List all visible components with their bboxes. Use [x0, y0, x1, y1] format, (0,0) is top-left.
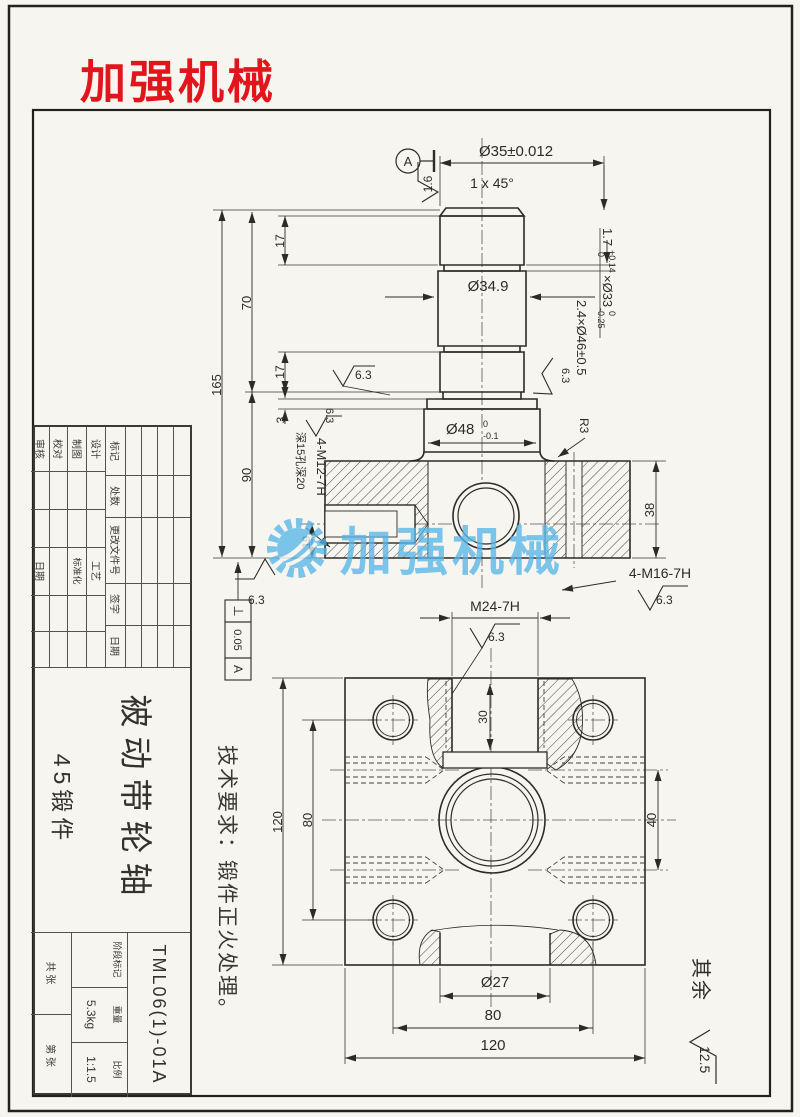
m12-depth-label: 深15孔深20 — [294, 432, 307, 489]
dim-d35: Ø35±0.012 — [479, 143, 553, 160]
r3-label: R3 — [577, 418, 591, 434]
role-standardization: 标准化 — [68, 547, 87, 595]
chamfer-label: 1 x 45° — [470, 175, 514, 191]
role-design: 设计 — [87, 427, 106, 471]
datum-a-symbol: A — [396, 149, 434, 173]
dim-17b: 17 — [273, 365, 287, 379]
svg-text:×Ø33: ×Ø33 — [600, 275, 615, 307]
dim-d48-tol-up: 0 — [483, 419, 488, 429]
dim-d48-tol-dn: -0.1 — [483, 431, 499, 441]
part-name: 被动带轮轴 — [94, 667, 182, 932]
finish-63-c-value: 6.3 — [559, 368, 571, 383]
svg-text:+0.14: +0.14 — [607, 250, 617, 273]
finish-63-a-value: 6.3 — [355, 368, 372, 382]
page-count: 第 张 — [31, 1014, 72, 1097]
m12-label: 4-M12-7H — [314, 438, 329, 496]
m24-label: M24-7H — [470, 598, 520, 614]
finish-63-b-value: 6.3 — [323, 408, 335, 423]
scale-value: 1:1.5 — [76, 1042, 106, 1097]
dim-d48-base: Ø48 — [446, 421, 474, 438]
rev-header-sign: 签字 — [106, 583, 126, 625]
dim-19: 19 — [301, 536, 313, 548]
qiyu-label: 其余 — [689, 958, 712, 1002]
groove2-label: 2.4×Ø46±0.5 — [574, 300, 589, 375]
dim-70: 70 — [239, 296, 254, 310]
technical-requirements: 技术要求：锻件正火处理。 — [213, 745, 243, 1021]
dim-120-left: 120 — [270, 811, 285, 833]
dim-165: 165 — [209, 374, 224, 396]
rev-header-biaoji: 标记 — [106, 427, 126, 475]
general-roughness-note: 其余 12.5 — [689, 958, 716, 1084]
sheet-count: 共 张 — [31, 932, 72, 1014]
flange-hidden-lines — [345, 681, 645, 883]
dim-80-bottom: 80 — [485, 1007, 502, 1024]
surface-finish-symbols — [235, 162, 688, 648]
scale-label: 比例 — [110, 1042, 126, 1097]
title-block: 标记 处数 更改文件号 签字 日期 设计 制图 校对 审核 工艺 标准化 日期 … — [33, 425, 192, 1095]
tolerance-datum-ref: A — [231, 665, 245, 673]
material-label: 45锻件 — [34, 667, 94, 932]
weight-label: 重量 — [110, 987, 126, 1042]
dim-30: 30 — [476, 710, 490, 724]
dim-38: 38 — [642, 503, 657, 517]
role-draft: 制图 — [68, 427, 87, 471]
dim-d27: Ø27 — [481, 974, 509, 991]
dim-90: 90 — [239, 468, 254, 482]
stage-label: 阶段标记 — [110, 932, 126, 987]
svg-text:0: 0 — [596, 252, 606, 257]
drawing-number: TML06(1)-01A — [128, 932, 190, 1097]
m16-label: 4-M16-7H — [629, 565, 691, 581]
rev-header-file-no: 更改文件号 — [106, 517, 126, 583]
finish-63-d-value: 6.3 — [656, 593, 673, 607]
dim-3: 3 — [274, 416, 288, 423]
tolerance-symbol: ⊥ — [231, 605, 246, 616]
centerlines — [300, 138, 676, 1008]
role-audit: 审核 — [31, 427, 50, 471]
dim-120-bottom: 120 — [480, 1037, 505, 1054]
groove1-label: 1.7 +0.14 0 ×Ø33 0 -0.25 — [596, 228, 617, 329]
finish-symbol-63-f — [235, 559, 275, 579]
drawing-sheet: A ⊥ 0.05 A Ø35±0.012 1 x 45° 1.6 Ø34.9 1… — [0, 0, 800, 1117]
flange-view-labels: M24-7H 6.3 30 120 80 40 Ø27 80 120 — [270, 598, 659, 1054]
dim-d349: Ø34.9 — [468, 278, 509, 295]
datum-a-label: A — [404, 154, 413, 169]
tolerance-value: 0.05 — [231, 629, 243, 650]
role-check: 校对 — [50, 427, 68, 471]
rev-header-date: 日期 — [106, 625, 126, 667]
company-logo: 加强机械 — [80, 46, 276, 112]
dim-17a: 17 — [273, 234, 287, 248]
weight-value: 5.3kg — [76, 987, 106, 1042]
role-date: 日期 — [31, 547, 50, 595]
svg-text:-0.25: -0.25 — [596, 308, 606, 329]
svg-text:0: 0 — [607, 311, 617, 316]
rev-header-chushu: 处数 — [106, 475, 126, 517]
perpendicularity-tolerance-frame: ⊥ 0.05 A — [225, 600, 251, 680]
shaft-base-sections — [325, 461, 630, 558]
extension-lines — [213, 156, 666, 1064]
svg-text:1.7: 1.7 — [600, 228, 615, 246]
finish-63-e-value: 6.3 — [488, 630, 505, 644]
dim-80-left: 80 — [300, 813, 315, 827]
role-process: 工艺 — [87, 547, 106, 595]
finish-1-6-value: 1.6 — [421, 175, 435, 192]
dim-40: 40 — [644, 813, 659, 827]
flange-view-outline — [345, 678, 645, 965]
finish-63-f-value: 6.3 — [248, 593, 265, 607]
roughness-12-5: 12.5 — [697, 1046, 713, 1073]
